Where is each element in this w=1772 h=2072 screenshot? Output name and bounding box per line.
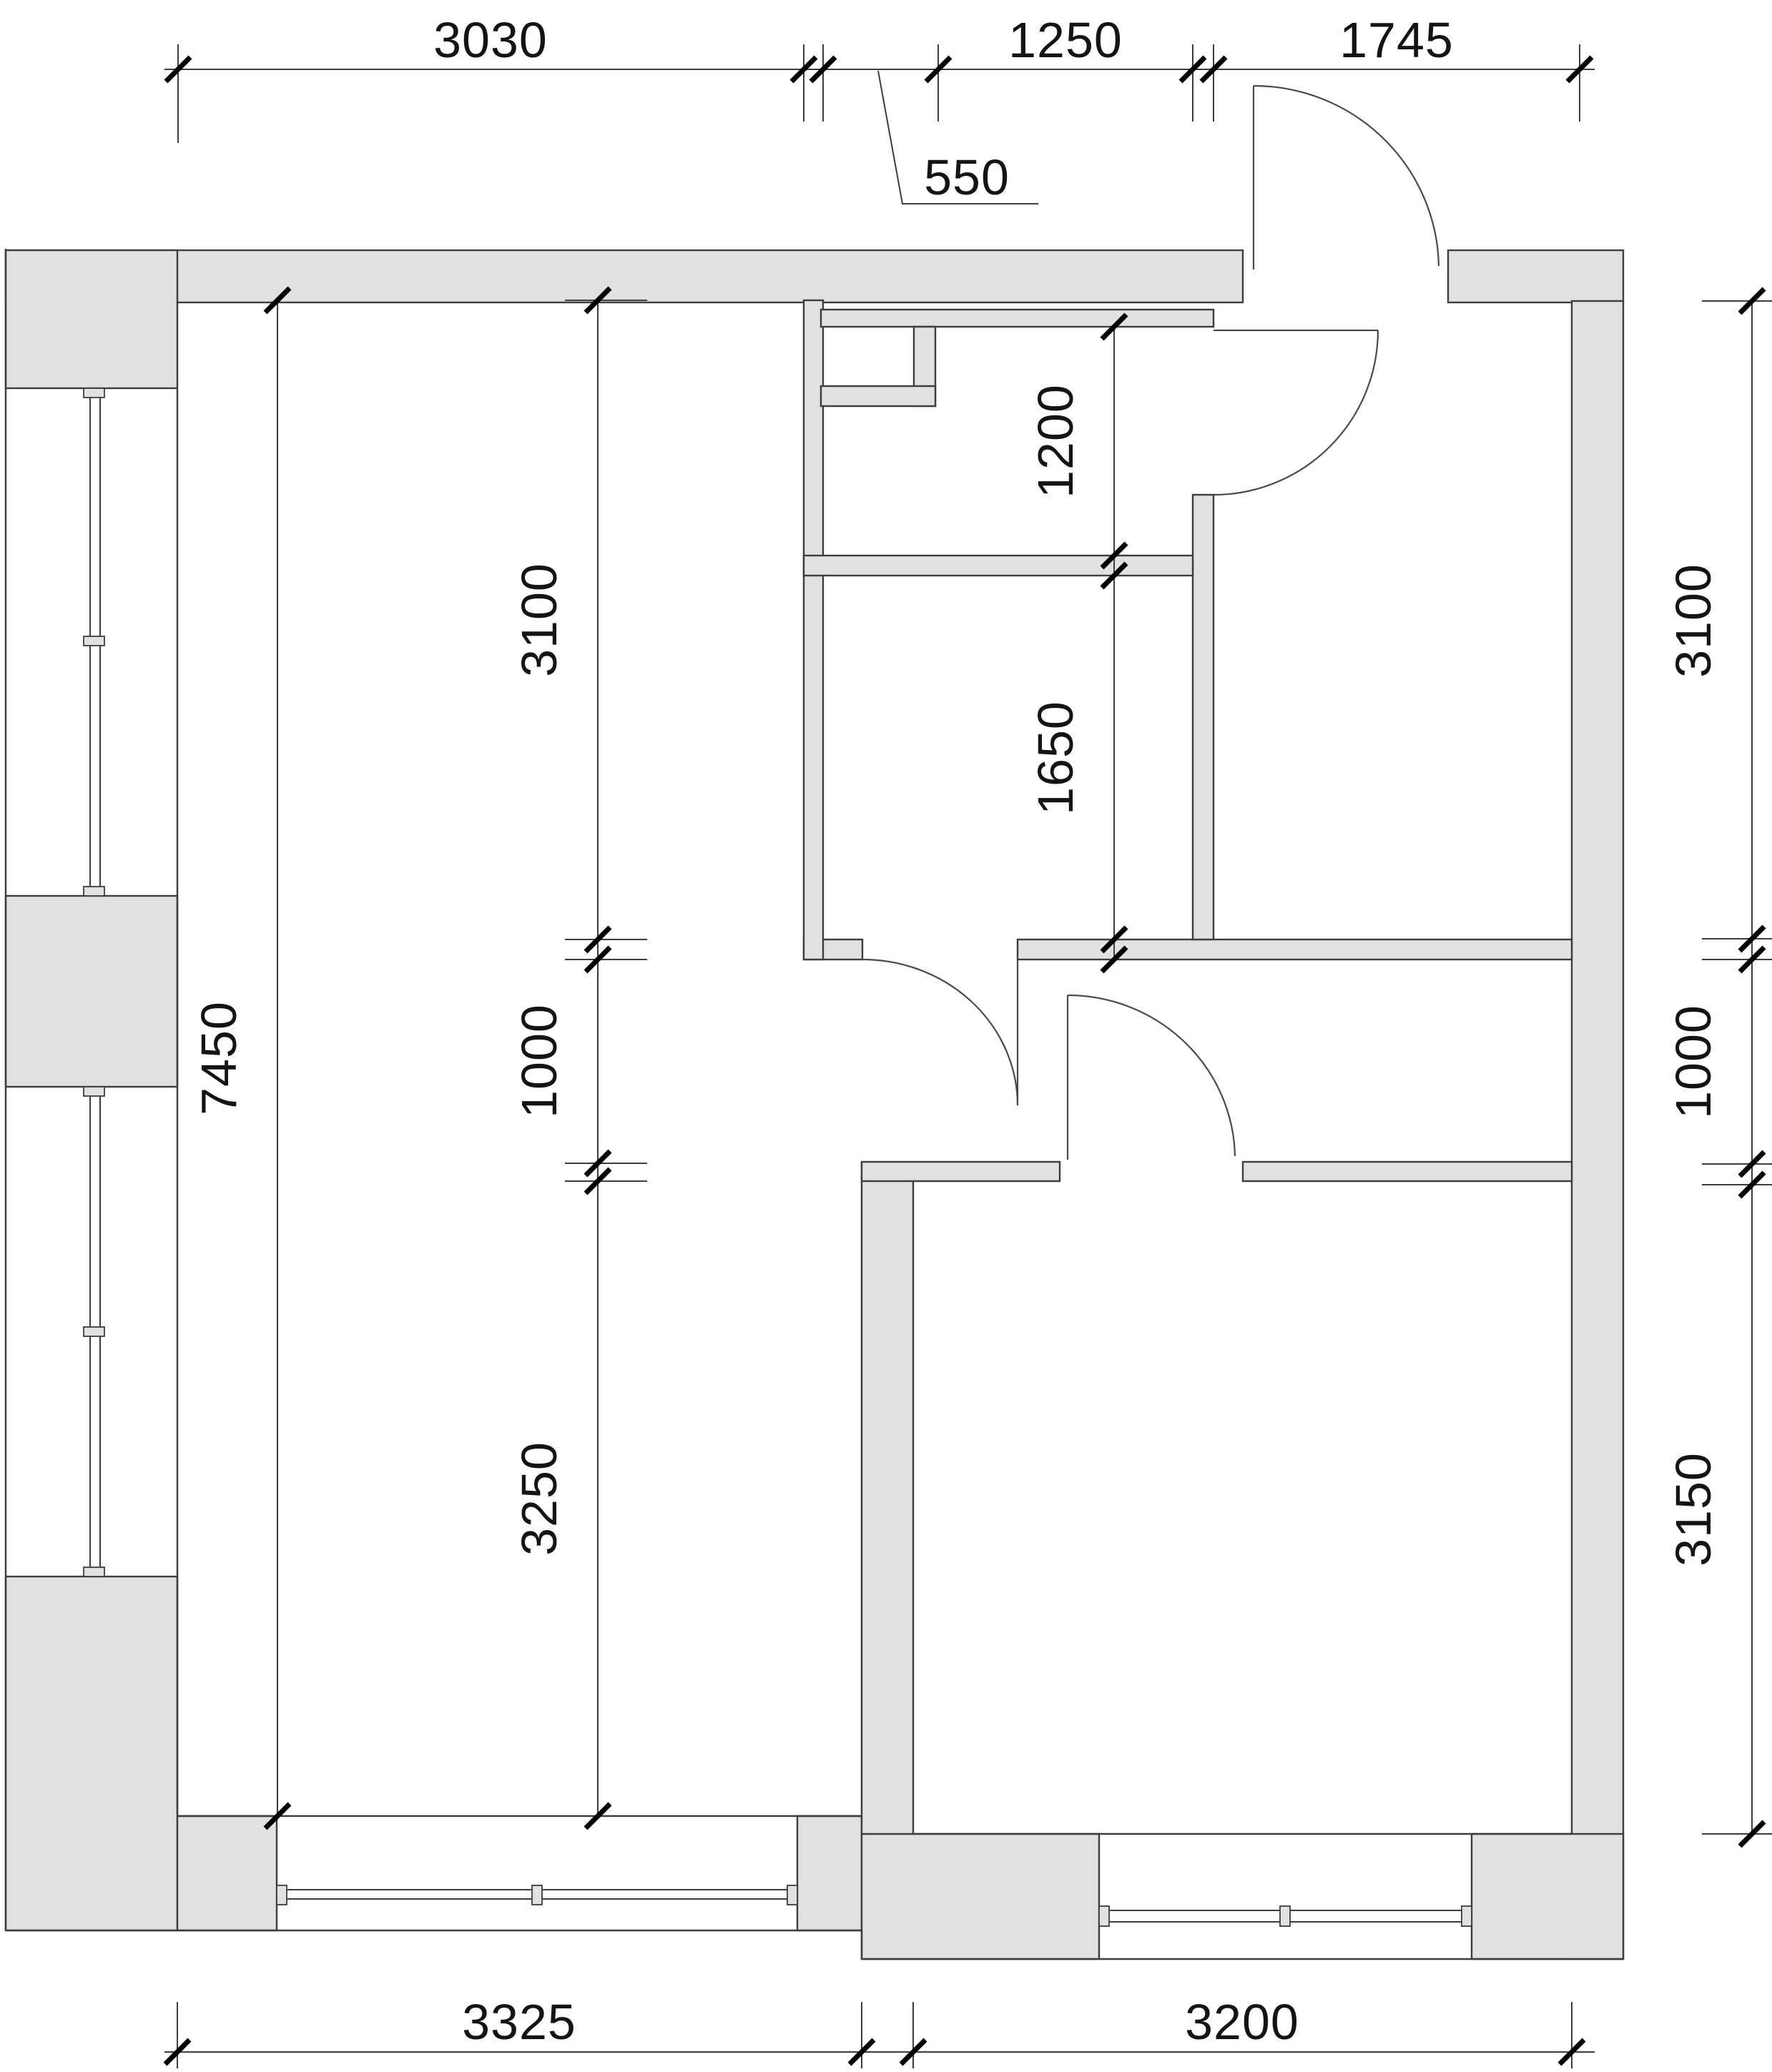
- left-wall-top-pier: [6, 250, 177, 388]
- dim-label: 1650: [1028, 701, 1083, 815]
- windows: [84, 388, 1472, 1926]
- dim-label: 3325: [462, 1994, 576, 2050]
- dim-label: 1000: [1665, 1005, 1721, 1119]
- left-wall-bottom-pier: [6, 1577, 177, 1930]
- dim-label: 3100: [511, 563, 567, 677]
- dim-chain-top: 3030 550 1250 1745: [164, 12, 1595, 205]
- dim-label: 550: [924, 149, 1010, 205]
- door-swing-arc: [1214, 330, 1378, 495]
- left-window-lower: [84, 1087, 104, 1577]
- dim-label: 7450: [191, 1001, 247, 1115]
- dim-chain-middle: 1200 1650: [1028, 315, 1144, 972]
- dim-chain-left-inner: 3100 1000 3250: [511, 288, 647, 1828]
- bathroom-door: [1214, 330, 1378, 495]
- bottom-wall-left-b: [797, 1816, 862, 1930]
- dim-label: 3250: [511, 1441, 567, 1556]
- floor-plan-page: 3030 550 1250 1745 7450 3100 1000 3250: [0, 0, 1772, 2072]
- sash-block: [84, 1327, 104, 1336]
- left-wall-middle-pier: [6, 896, 177, 1087]
- bottom-room-door: [1068, 995, 1235, 1160]
- entrance-door: [1254, 86, 1439, 270]
- bathroom-right-wall: [1193, 495, 1214, 939]
- hall-bottom-wall-left: [862, 1162, 1060, 1181]
- sash-block: [84, 887, 104, 896]
- sash-block: [532, 1885, 542, 1905]
- bottom-window-left: [277, 1885, 797, 1905]
- top-wall-left: [6, 250, 1243, 302]
- sash-block: [84, 1567, 104, 1577]
- left-window-upper: [84, 388, 104, 896]
- door-swing-arc: [1068, 995, 1235, 1156]
- dim-label: 1250: [1008, 12, 1123, 68]
- bottom-wall-left-a: [177, 1816, 277, 1930]
- shaft-bottom-wall: [821, 386, 935, 406]
- dim-label: 3100: [1665, 563, 1721, 678]
- sash-block: [1280, 1906, 1290, 1926]
- bathroom-middle-wall: [804, 556, 1193, 576]
- bottom-window-right: [1099, 1906, 1472, 1926]
- sash-block: [84, 1087, 104, 1096]
- doors: [862, 86, 1439, 1160]
- sash-block: [787, 1885, 797, 1905]
- hall-bottom-wall-right: [1243, 1162, 1572, 1181]
- extension-lines: [565, 300, 647, 1816]
- dim-label: 1745: [1339, 12, 1454, 68]
- extension-lines: [177, 2002, 1572, 2068]
- dim-chain-bottom: 3325 3200: [164, 1994, 1595, 2068]
- door-swing-arc: [1254, 86, 1439, 266]
- sash-block: [84, 388, 104, 398]
- hall-room-door: [862, 959, 1018, 1105]
- dim-chain-left-outer: 7450: [191, 288, 290, 1828]
- dim-label: 1200: [1028, 384, 1083, 498]
- right-exterior-wall: [1572, 301, 1623, 1959]
- sash-block: [1099, 1906, 1109, 1926]
- dim-label: 3200: [1185, 1994, 1299, 2050]
- sash-block: [277, 1885, 287, 1905]
- duct-wall-band: [821, 310, 1214, 327]
- door-swing-arc: [862, 959, 1018, 1105]
- dim-label: 3030: [433, 12, 548, 68]
- bottom-wall-middle: [862, 1834, 1099, 1959]
- bottom-wall-right: [1472, 1834, 1623, 1959]
- dim-chain-right: 3100 1000 3150: [1665, 289, 1772, 1846]
- dim-label: 3150: [1665, 1452, 1721, 1567]
- dim-label: 1000: [511, 1004, 567, 1118]
- top-wall-right: [1448, 250, 1623, 302]
- interior-wall-vertical-rooms: [862, 1163, 913, 1834]
- floor-plan-drawing: 3030 550 1250 1745 7450 3100 1000 3250: [0, 0, 1772, 2072]
- walls: [6, 250, 1623, 1959]
- sash-block: [84, 636, 104, 646]
- sash-block: [1462, 1906, 1472, 1926]
